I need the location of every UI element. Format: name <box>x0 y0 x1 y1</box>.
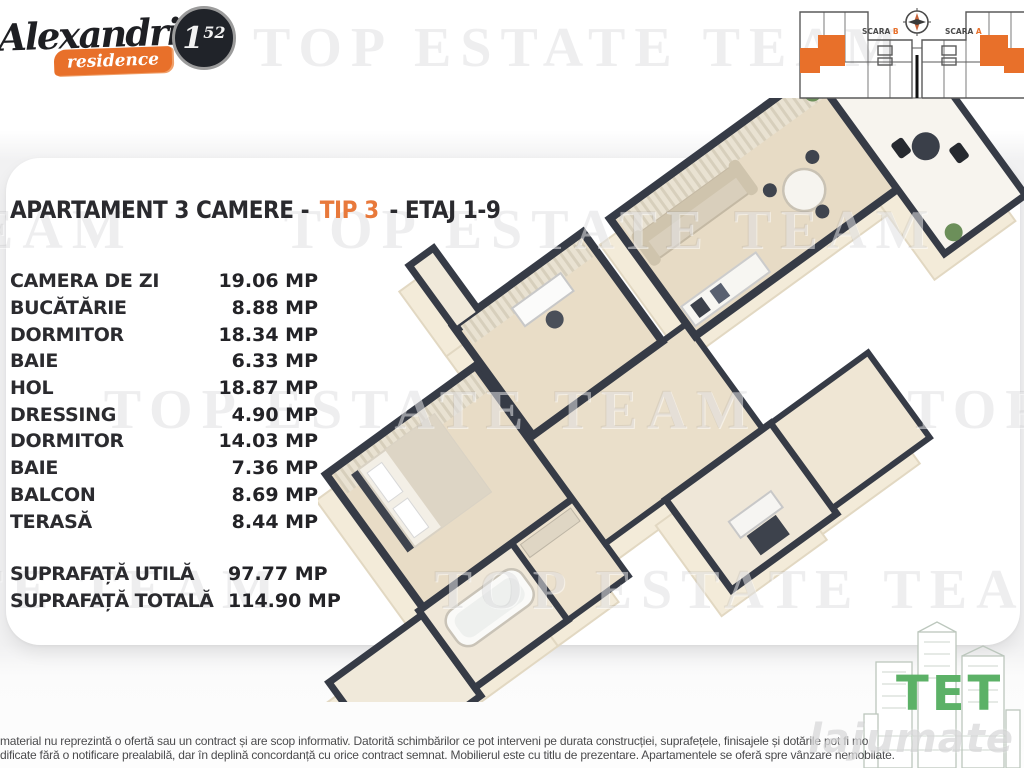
highlighted-unit-left <box>800 35 845 73</box>
room-row: TERASĂ8.44 MP <box>10 508 318 535</box>
highlighted-unit-right <box>980 35 1024 73</box>
title-part1: APARTAMENT 3 CAMERE - <box>10 196 309 224</box>
building-key-plan: SCARA B SCARA A <box>790 0 1024 105</box>
room-row: HOL18.87 MP <box>10 375 318 402</box>
room-row: DORMITOR14.03 MP <box>10 428 318 455</box>
totals-list: SUPRAFAȚĂ UTILĂ97.77 MP SUPRAFAȚĂ TOTALĂ… <box>10 560 318 614</box>
title-part2: - ETAJ 1-9 <box>389 196 500 224</box>
room-row: DORMITOR18.34 MP <box>10 321 318 348</box>
title-accent-tip: TIP 3 <box>320 196 379 224</box>
apartment-title: APARTAMENT 3 CAMERE - TIP 3 - ETAJ 1-9 <box>10 196 500 224</box>
room-row: BALCON8.69 MP <box>10 482 318 509</box>
tet-letters: TET <box>896 666 1003 722</box>
flyer-page: { "logo": { "name": "Alexandriei", "subt… <box>0 0 1024 768</box>
brand-subtitle: residence <box>67 49 160 72</box>
room-row: BAIE7.36 MP <box>10 455 318 482</box>
stair-b-label: SCARA B <box>862 27 899 36</box>
badge-number-big: 1 <box>182 21 203 56</box>
floorplan-rooms <box>318 98 1024 702</box>
brand-residence-banner: residence <box>54 46 173 76</box>
room-row: BAIE6.33 MP <box>10 348 318 375</box>
badge-number-small: 52 <box>203 23 225 42</box>
total-row: SUPRAFAȚĂ TOTALĂ114.90 MP <box>10 587 318 614</box>
stair-a-label: SCARA A <box>945 27 982 36</box>
compass-icon <box>903 8 931 36</box>
total-row: SUPRAFAȚĂ UTILĂ97.77 MP <box>10 560 318 587</box>
room-row: CAMERA DE ZI19.06 MP <box>10 268 318 295</box>
room-list: CAMERA DE ZI19.06 MP BUCĂTĂRIE8.88 MP DO… <box>10 268 318 535</box>
floorplan-3d <box>318 98 1024 702</box>
brand-badge-152: 1 52 <box>172 6 236 70</box>
room-row: BUCĂTĂRIE8.88 MP <box>10 295 318 322</box>
room-row: DRESSING4.90 MP <box>10 401 318 428</box>
brand-logo: Alexandriei residence 1 52 <box>0 4 254 104</box>
ghost-overlay-watermark: lajumate <box>808 716 1014 762</box>
